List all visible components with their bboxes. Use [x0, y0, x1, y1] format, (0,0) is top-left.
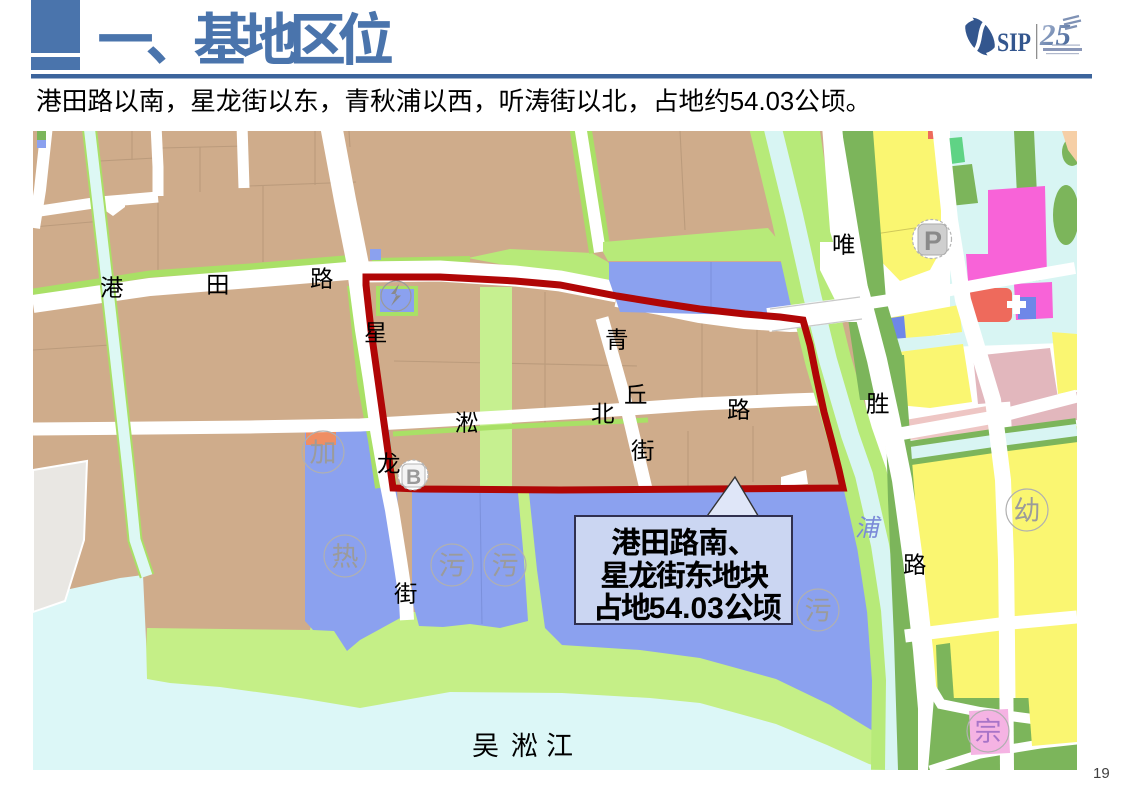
- svg-text:19: 19: [1093, 765, 1110, 782]
- svg-text:B: B: [406, 466, 421, 489]
- svg-text:54.03: 54.03: [649, 592, 724, 625]
- svg-text:54.03: 54.03: [730, 88, 794, 116]
- svg-text:25: 25: [1039, 17, 1071, 52]
- svg-text:P: P: [924, 226, 942, 256]
- svg-text:SIP: SIP: [997, 28, 1031, 57]
